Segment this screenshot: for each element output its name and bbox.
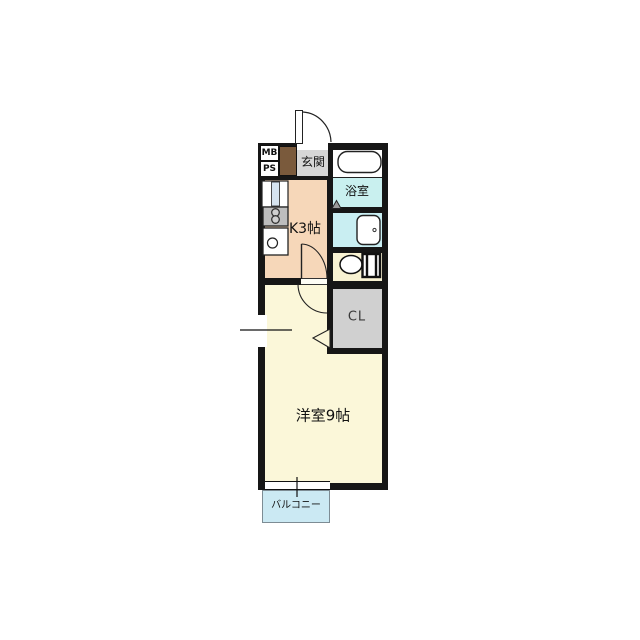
entrance-label: 玄関	[301, 156, 325, 168]
entrance-wall	[259, 176, 330, 180]
pipe-space-label: PS	[263, 164, 276, 174]
shoe-cabinet	[279, 146, 297, 176]
pipe-space-box: PS	[260, 161, 279, 177]
balcony-sliding-window	[265, 481, 330, 490]
toilet-room	[333, 253, 382, 281]
kitchen-label: K3帖	[289, 222, 321, 236]
washroom-room	[333, 213, 382, 247]
entrance-door-arc-icon	[303, 112, 331, 142]
balcony-label: バルコニー	[271, 501, 321, 511]
western-room-label: 洋室9帖	[296, 409, 351, 424]
left-window	[258, 315, 267, 347]
closet-label: CL	[348, 311, 366, 324]
meter-box-label: MB	[262, 148, 278, 158]
kitchen-doorway	[301, 278, 327, 285]
bathroom-label: 浴室	[345, 185, 369, 197]
meter-box: MB	[260, 145, 279, 161]
entrance-door-leaf	[295, 110, 303, 144]
bathtub-area	[333, 150, 382, 177]
